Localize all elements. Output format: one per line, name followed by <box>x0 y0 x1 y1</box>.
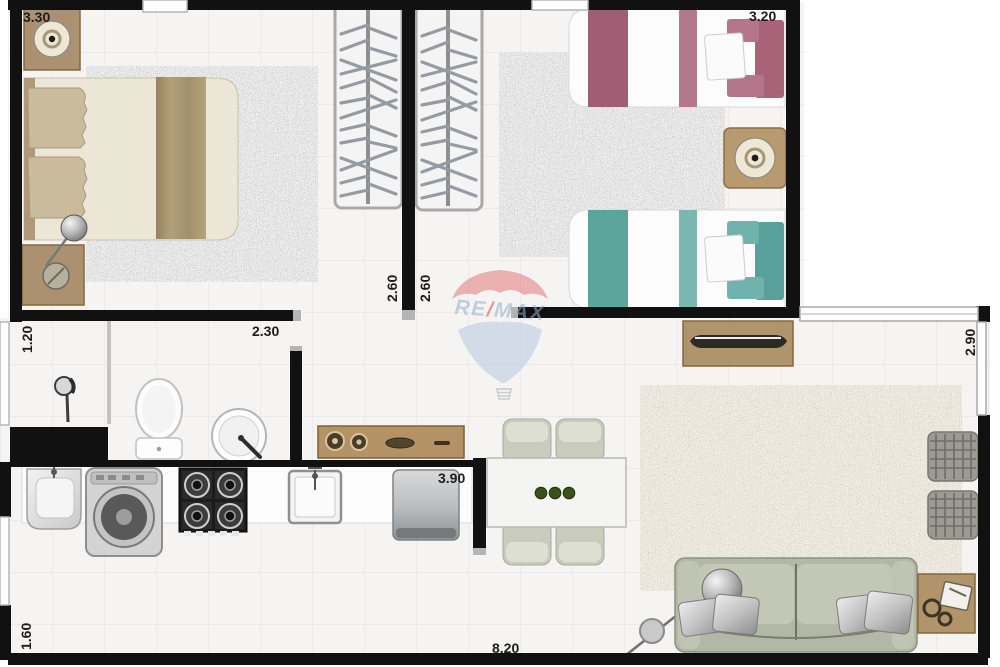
svg-text:2.90: 2.90 <box>962 329 978 356</box>
svg-text:3.30: 3.30 <box>23 9 50 25</box>
svg-text:1.20: 1.20 <box>19 326 35 353</box>
svg-text:1.60: 1.60 <box>18 623 34 650</box>
svg-text:8.20: 8.20 <box>492 640 519 656</box>
svg-text:3.90: 3.90 <box>438 470 465 486</box>
svg-text:2.60: 2.60 <box>384 275 400 302</box>
svg-text:2.60: 2.60 <box>417 275 433 302</box>
svg-text:2.30: 2.30 <box>252 323 279 339</box>
svg-text:3.20: 3.20 <box>749 8 776 24</box>
